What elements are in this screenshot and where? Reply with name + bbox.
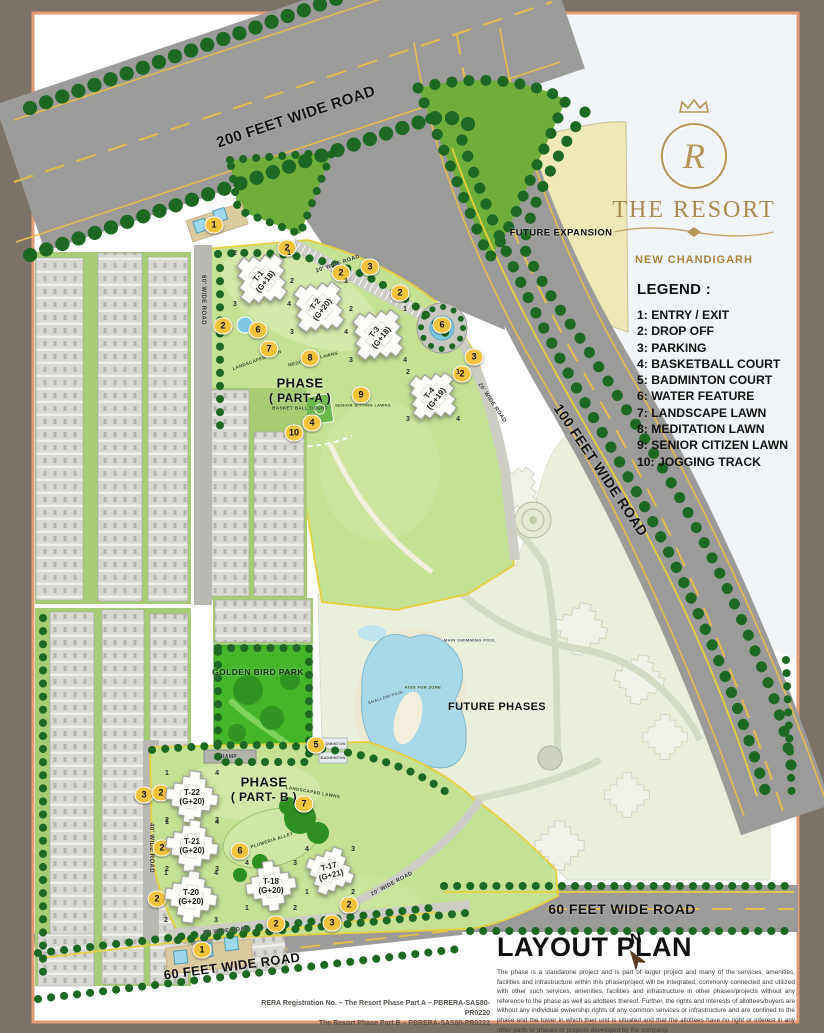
legend-marker: 5 [307,737,326,754]
map-label: 60 FEET WIDE ROAD [548,901,696,917]
tower: T-2 (G+20) 2 1 3 4 [288,276,350,338]
legend-marker: 7 [295,796,314,813]
legend-marker-number: 7 [301,799,306,809]
tower-name: T-22 [179,788,204,797]
map-label: ( PART-A ) [269,391,331,405]
tower-wing-number: 2 [406,369,410,376]
map-label: PHASE [277,376,324,391]
map-label: 60' WIDE ROAD [200,275,206,325]
tower-wing-number: 1 [165,819,169,826]
legend-marker-number: 5 [313,740,318,750]
legend-marker-number: 9 [358,390,363,400]
legend-marker: 1 [193,942,212,959]
tower-wing-number: 3 [349,357,353,364]
legend-item: 4: BASKETBALL COURT [637,356,788,372]
brand-logo: R THE RESORT NEW CHANDIGARH [598,98,790,266]
legend-marker: 6 [433,317,452,334]
tower-wing-number: 4 [305,846,309,853]
tower-wing-number: 3 [351,846,355,853]
tower-wing-number: 1 [164,870,168,877]
project-city: NEW CHANDIGARH [598,254,790,266]
tower-config: (G+20) [178,897,203,906]
tower-label: T-20 (G+20) [178,888,203,906]
tower-wing-number: 2 [164,917,168,924]
tower-wing-number: 2 [351,889,355,896]
map-label: PHASE [241,775,288,790]
legend-marker: 3 [135,787,154,804]
legend-marker-number: 2 [154,894,159,904]
legend-marker-number: 6 [237,846,242,856]
legend-marker: 3 [323,915,342,932]
tower-wing-number: 2 [293,905,297,912]
site-plan-canvas: R THE RESORT NEW CHANDIGARH LEGEND : 1: … [0,0,824,1033]
legend-marker: 7 [260,341,279,358]
legend-marker: 3 [465,349,484,366]
tower-wing-number: 3 [406,416,410,423]
tower-wing-number: 2 [233,250,237,257]
tower-wing-number: 3 [233,301,237,308]
legend-marker-number: 3 [367,262,372,272]
tower-wing-number: 1 [344,278,348,285]
tower-wing-number: 2 [349,306,353,313]
tower-wing-number: 4 [215,819,219,826]
legend-marker-number: 4 [309,418,314,428]
legend-marker-number: 2 [273,919,278,929]
tower-wing-number: 1 [305,889,309,896]
legend-marker-number: 8 [307,353,312,363]
legend-marker: 10 [285,425,304,442]
legend-item: 5: BADMINTON COURT [637,372,788,388]
legend-item: 9: SENIOR CITIZEN LAWN [637,437,788,453]
layout-plan-panel: LAYOUT PLAN N The phase is a standalone … [497,932,797,1033]
legend-marker: 8 [301,350,320,367]
legend-marker-number: 2 [220,321,225,331]
legend-marker: 4 [303,415,322,432]
tower: T-17 (G+21) 4 3 1 2 [303,844,357,898]
legend-item: 1: ENTRY / EXIT [637,307,788,323]
legend-marker-number: 3 [471,352,476,362]
crown-icon [677,98,711,114]
legend-item: 2: DROP OFF [637,323,788,339]
rera-line-2: The Resort Phase Part B – PBRERA-SAS80-P… [242,1019,490,1029]
monogram-letter: R [683,135,705,177]
legend-marker: 1 [205,217,224,234]
legend-marker: 6 [231,843,250,860]
legend-marker: 3 [361,259,380,276]
tower-name: T-20 [178,888,203,897]
legend-marker: 2 [267,916,286,933]
monogram-badge: R [661,123,727,189]
legend-marker-number: 7 [266,344,271,354]
legend-marker-number: 3 [329,918,334,928]
tower-config: (G+20) [258,886,283,895]
legend-marker: 2 [391,285,410,302]
tower-wing-number: 3 [290,329,294,336]
tower: T-3 (G+18) 2 1 3 4 [347,304,409,366]
tower-wing-number: 1 [245,905,249,912]
legend-item: 7: LANDSCAPE LAWN [637,405,788,421]
legend-item: 8: MEDITATION LAWN [637,421,788,437]
tower-wing-number: 1 [287,250,291,257]
tower-wing-number: 4 [403,357,407,364]
tower: T-4 (G+19) 2 1 3 4 [404,367,462,425]
map-label: FUTURE EXPANSION [510,228,613,239]
tower-label: T-18 (G+20) [258,877,283,895]
rera-line-1: RERA Registration No. – The Resort Phase… [242,999,490,1019]
legend-marker: 2 [214,318,233,335]
tower-label: T-21 (G+20) [179,837,204,855]
map-label: BASKET BALL COURT [272,406,328,411]
legend-item: 10: JOGGING TRACK [637,454,788,470]
legend-marker-number: 2 [397,288,402,298]
tower-wing-number: 2 [290,278,294,285]
legend-marker-number: 3 [141,790,146,800]
tower-wing-number: 3 [293,860,297,867]
rera-registration: RERA Registration No. – The Resort Phase… [242,999,490,1029]
map-label: BADMINTON [321,756,346,760]
compass-arrow-icon [627,947,645,971]
tower-wing-number: 3 [214,917,218,924]
tower-wing-number: 4 [214,870,218,877]
legend-panel: LEGEND : 1: ENTRY / EXIT2: DROP OFF3: PA… [637,281,788,470]
legend-marker-number: 1 [211,220,216,230]
legend-marker: 9 [352,387,371,404]
map-label: RAMP [221,754,237,760]
legend-item: 3: PARKING [637,340,788,356]
tower-wing-number: 1 [165,770,169,777]
legend-marker-number: 10 [289,428,299,438]
tower: T-20 (G+20) 1 4 2 3 [162,868,220,926]
map-label: MAIN SWIMMING POOL [444,638,496,643]
legend-title: LEGEND : [637,281,788,298]
tower-name: T-18 [258,877,283,886]
tower-wing-number: 4 [215,770,219,777]
map-label: GOLDEN BIRD PARK [212,667,304,677]
tower-wing-number: 1 [456,369,460,376]
layout-plan-title: LAYOUT PLAN [497,932,797,963]
north-label: N [625,928,646,948]
tower: T-18 (G+20) 4 3 1 2 [243,858,299,914]
legend-marker: 6 [249,322,268,339]
tower-wing-number: 4 [456,416,460,423]
tower-label: T-22 (G+20) [179,788,204,806]
project-name: THE RESORT [598,197,790,224]
tower-wing-number: 1 [403,306,407,313]
tower-name: T-21 [179,837,204,846]
legend-list: 1: ENTRY / EXIT2: DROP OFF3: PARKING4: B… [637,307,788,470]
disclaimer-text: The phase is a standalone project and is… [497,968,795,1033]
tower-wing-number: 4 [245,860,249,867]
tower-config: (G+20) [179,846,204,855]
tower-config: (G+20) [179,797,204,806]
legend-marker-number: 1 [199,945,204,955]
map-label: FUTURE PHASES [448,701,546,713]
legend-marker-number: 6 [255,325,260,335]
flourish-ornament [609,224,779,240]
map-label: ( PART- B ) [231,790,297,804]
map-label: KIDS FUN ZONE [405,685,441,690]
legend-item: 6: WATER FEATURE [637,388,788,404]
north-arrow: N [627,930,645,976]
legend-marker-number: 6 [439,320,444,330]
